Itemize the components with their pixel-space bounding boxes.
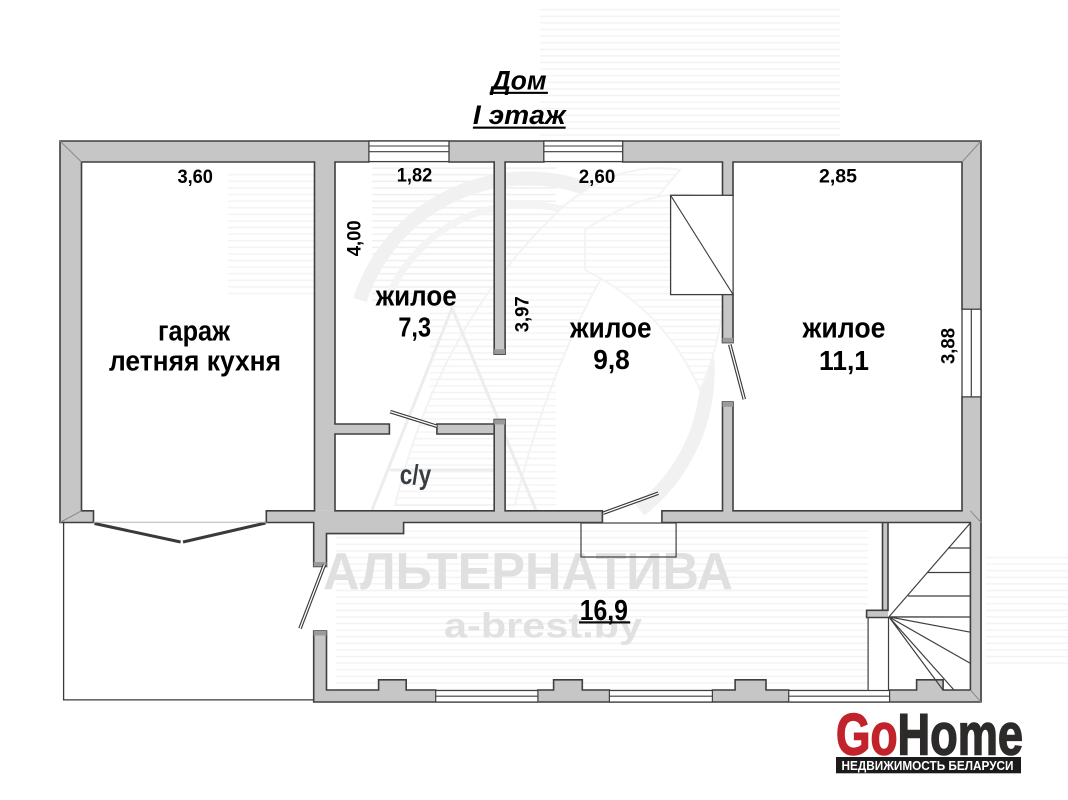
svg-text:жилое: жилое (375, 281, 457, 313)
svg-text:11,1: 11,1 (819, 345, 869, 376)
svg-text:3,88: 3,88 (939, 328, 960, 364)
svg-text:4,00: 4,00 (345, 220, 366, 256)
svg-text:жилое: жилое (802, 313, 886, 345)
svg-text:3,97: 3,97 (512, 296, 533, 332)
svg-text:с/у: с/у (400, 459, 432, 490)
svg-text:9,8: 9,8 (593, 344, 630, 375)
svg-text:1,82: 1,82 (397, 166, 433, 187)
svg-text:АЛЬТЕРНАТИВА: АЛЬТЕРНАТИВА (323, 543, 733, 601)
svg-text:7,3: 7,3 (398, 312, 431, 343)
svg-text:2,60: 2,60 (579, 167, 616, 188)
svg-text:гараж: гараж (158, 316, 230, 348)
svg-text:Дом: Дом (489, 66, 546, 96)
svg-text:3,60: 3,60 (177, 167, 213, 188)
svg-text:жилое: жилое (569, 313, 652, 345)
svg-text:НЕДВИЖИМОСТЬ БЕЛАРУСИ: НЕДВИЖИМОСТЬ БЕЛАРУСИ (842, 758, 1014, 773)
svg-text:I этаж: I этаж (473, 100, 567, 130)
svg-text:летняя кухня: летняя кухня (109, 346, 281, 378)
svg-text:2,85: 2,85 (819, 167, 857, 188)
